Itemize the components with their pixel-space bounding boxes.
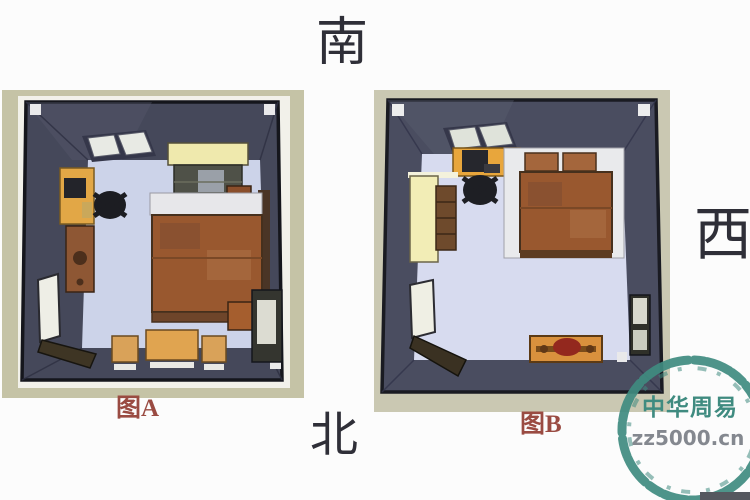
- tea-table: [146, 330, 198, 368]
- watermark-text-url: zz5000.cn: [632, 426, 745, 450]
- watermark-seal: 中华周易 zz5000.cn: [612, 352, 750, 500]
- dresser: [66, 226, 94, 292]
- direction-label-north: 北: [310, 412, 358, 460]
- office-chair: [94, 191, 126, 219]
- direction-label-south: 南: [316, 18, 368, 70]
- floorplan-a: [2, 90, 304, 398]
- side-door: [252, 290, 282, 362]
- double-bed: [504, 148, 624, 258]
- stool-right: [202, 336, 226, 370]
- corner-marker: [638, 104, 650, 116]
- desk-with-computer: [60, 168, 94, 224]
- side-door: [630, 295, 650, 355]
- corner-marker: [30, 104, 41, 115]
- floorplan-b-caption: 图B: [520, 412, 562, 437]
- floorplan-a-drawing: [2, 90, 304, 398]
- bench: [530, 336, 602, 362]
- stool-left: [112, 336, 138, 370]
- corner-marker: [392, 104, 404, 116]
- corner-marker: [264, 104, 275, 115]
- direction-label-west: 西: [694, 206, 750, 264]
- bottom-right-bar: [700, 492, 750, 500]
- screenshot-root: 南 北 西: [0, 0, 750, 500]
- office-chair: [463, 175, 497, 205]
- floorplan-a-caption: 图A: [116, 396, 159, 421]
- watermark-drawing: 中华周易 zz5000.cn: [612, 352, 750, 500]
- watermark-text-cn: 中华周易: [642, 394, 738, 421]
- wardrobe: [408, 172, 458, 262]
